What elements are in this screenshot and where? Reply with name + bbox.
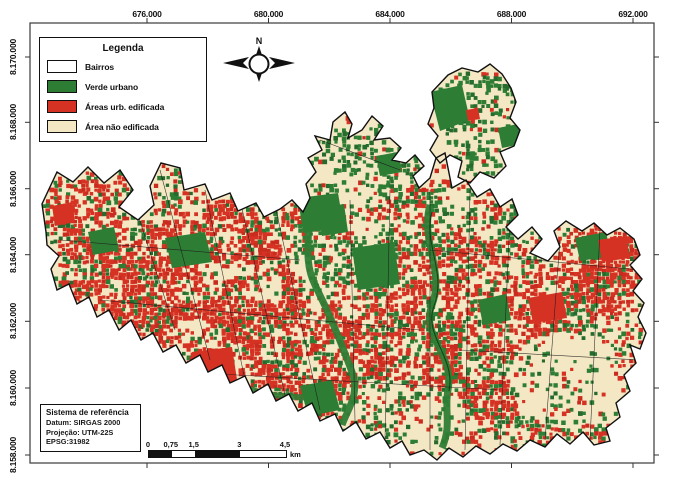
y-axis-label: 8.160.000 xyxy=(8,370,18,406)
legend-item: Verde urbano xyxy=(47,79,206,94)
north-label: N xyxy=(256,36,263,46)
reference-system-box: Sistema de referência Datum: SIRGAS 2000… xyxy=(40,404,141,452)
legend-label: Áreas urb. edificada xyxy=(85,102,164,112)
reference-title: Sistema de referência xyxy=(46,408,135,417)
x-axis-label: 676.000 xyxy=(132,9,161,19)
x-axis-label: 688.000 xyxy=(497,9,526,19)
y-axis-label: 8.158.000 xyxy=(8,437,18,473)
reference-projection: Projeção: UTM-22S xyxy=(46,428,135,438)
north-arrow: N xyxy=(223,36,295,82)
reference-epsg: EPSG:31982 xyxy=(46,437,135,447)
legend-swatch xyxy=(47,80,77,93)
legend-label: Bairros xyxy=(85,62,114,72)
map-figure: { "figure": { "type": "land-use-map", "b… xyxy=(0,0,673,477)
scale-bar-label: 1,5 xyxy=(188,440,198,449)
scale-bar-segment xyxy=(149,451,172,457)
y-axis-label: 8.166.000 xyxy=(8,171,18,207)
legend-swatch xyxy=(47,100,77,113)
scale-bar-label: 3 xyxy=(237,440,241,449)
x-axis-label: 680.000 xyxy=(254,9,283,19)
scale-bar-segment xyxy=(240,451,286,457)
y-axis-label: 8.164.000 xyxy=(8,237,18,273)
y-axis-label: 8.168.000 xyxy=(8,104,18,140)
scale-bar-label: 0 xyxy=(146,440,150,449)
reference-datum: Datum: SIRGAS 2000 xyxy=(46,418,135,428)
scale-bar-segments xyxy=(148,450,287,458)
legend-swatch xyxy=(47,60,77,73)
scale-bar-unit: km xyxy=(290,450,301,459)
legend-swatch xyxy=(47,120,77,133)
legend-title: Legenda xyxy=(40,43,206,54)
y-axis-label: 8.170.000 xyxy=(8,39,18,75)
y-axis-label: 8.162.000 xyxy=(8,303,18,339)
scale-bar-labels: 00,751,534,5 xyxy=(148,440,313,450)
scale-bar: 00,751,534,5 km xyxy=(148,440,313,458)
legend-item: Bairros xyxy=(47,59,206,74)
scale-bar-label: 4,5 xyxy=(280,440,290,449)
legend-label: Verde urbano xyxy=(85,82,138,92)
legend-label: Área não edificada xyxy=(85,122,159,132)
legend-box: Legenda BairrosVerde urbanoÁreas urb. ed… xyxy=(39,37,207,142)
scale-bar-segment xyxy=(172,451,195,457)
legend-item: Áreas urb. edificada xyxy=(47,99,206,114)
x-axis-label: 692.000 xyxy=(618,9,647,19)
scale-bar-segment xyxy=(195,451,241,457)
legend-item: Área não edificada xyxy=(47,119,206,134)
x-axis-label: 684.000 xyxy=(375,9,404,19)
legend-rows: BairrosVerde urbanoÁreas urb. edificadaÁ… xyxy=(40,59,206,134)
scale-bar-label: 0,75 xyxy=(163,440,178,449)
